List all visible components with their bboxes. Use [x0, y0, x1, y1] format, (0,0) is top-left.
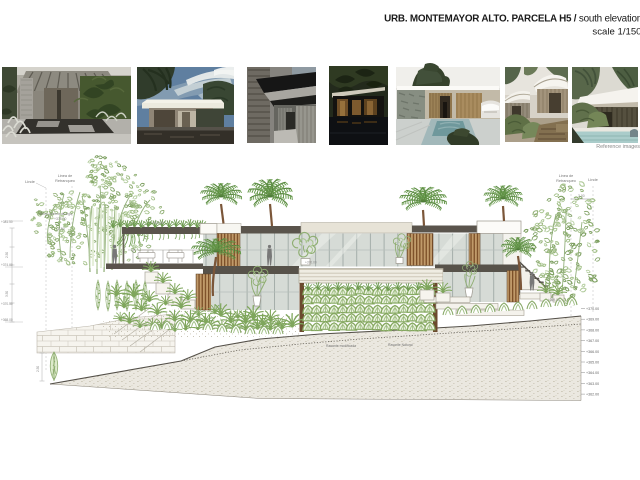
svg-text:+381.50: +381.50 — [1, 220, 13, 224]
svg-text:+374.00: +374.00 — [1, 263, 13, 267]
svg-text:+370.00: +370.00 — [586, 307, 599, 311]
svg-text:+364.00: +364.00 — [586, 371, 599, 375]
svg-text:Muro cumbre de viga: Muro cumbre de viga — [40, 212, 72, 216]
svg-text:+370.50: +370.50 — [1, 302, 13, 306]
svg-text:2.50: 2.50 — [5, 252, 9, 258]
svg-text:+363.00: +363.00 — [586, 382, 599, 386]
svg-text:+369.00: +369.00 — [586, 318, 599, 322]
svg-text:2.50: 2.50 — [58, 227, 65, 231]
svg-text:Reference images: Reference images — [596, 144, 640, 150]
svg-text:Retranqueo: Retranqueo — [556, 179, 576, 183]
svg-text:Linde: Linde — [588, 177, 599, 182]
svg-text:URB. MONTEMAYOR ALTO. PARCELA: URB. MONTEMAYOR ALTO. PARCELA H5 / south… — [384, 13, 640, 24]
svg-text:Retranqueo: Retranqueo — [55, 179, 75, 183]
svg-text:Linde: Linde — [25, 179, 36, 184]
svg-text:+366.00: +366.00 — [586, 350, 599, 354]
svg-text:+367.00: +367.00 — [586, 339, 599, 343]
svg-text:Linea de: Linea de — [559, 174, 574, 178]
svg-text:+368.00: +368.00 — [586, 328, 599, 332]
svg-text:+362.00: +362.00 — [586, 393, 599, 397]
svg-text:+369.00: +369.00 — [548, 298, 560, 302]
svg-text:2.50: 2.50 — [36, 366, 40, 372]
svg-text:3.50: 3.50 — [5, 291, 9, 297]
svg-text:+365.00: +365.00 — [586, 361, 599, 365]
svg-text:+370.00: +370.00 — [305, 261, 317, 265]
svg-text:+374.50: +374.50 — [152, 221, 164, 225]
svg-text:Linea de: Linea de — [58, 174, 73, 178]
svg-text:Rasante Natural: Rasante Natural — [388, 343, 413, 347]
svg-text:+378.00: +378.00 — [54, 217, 66, 221]
svg-text:scale 1/150: scale 1/150 — [592, 27, 640, 38]
svg-text:+368.00: +368.00 — [1, 318, 13, 322]
svg-text:Rasante modificada: Rasante modificada — [326, 344, 356, 348]
